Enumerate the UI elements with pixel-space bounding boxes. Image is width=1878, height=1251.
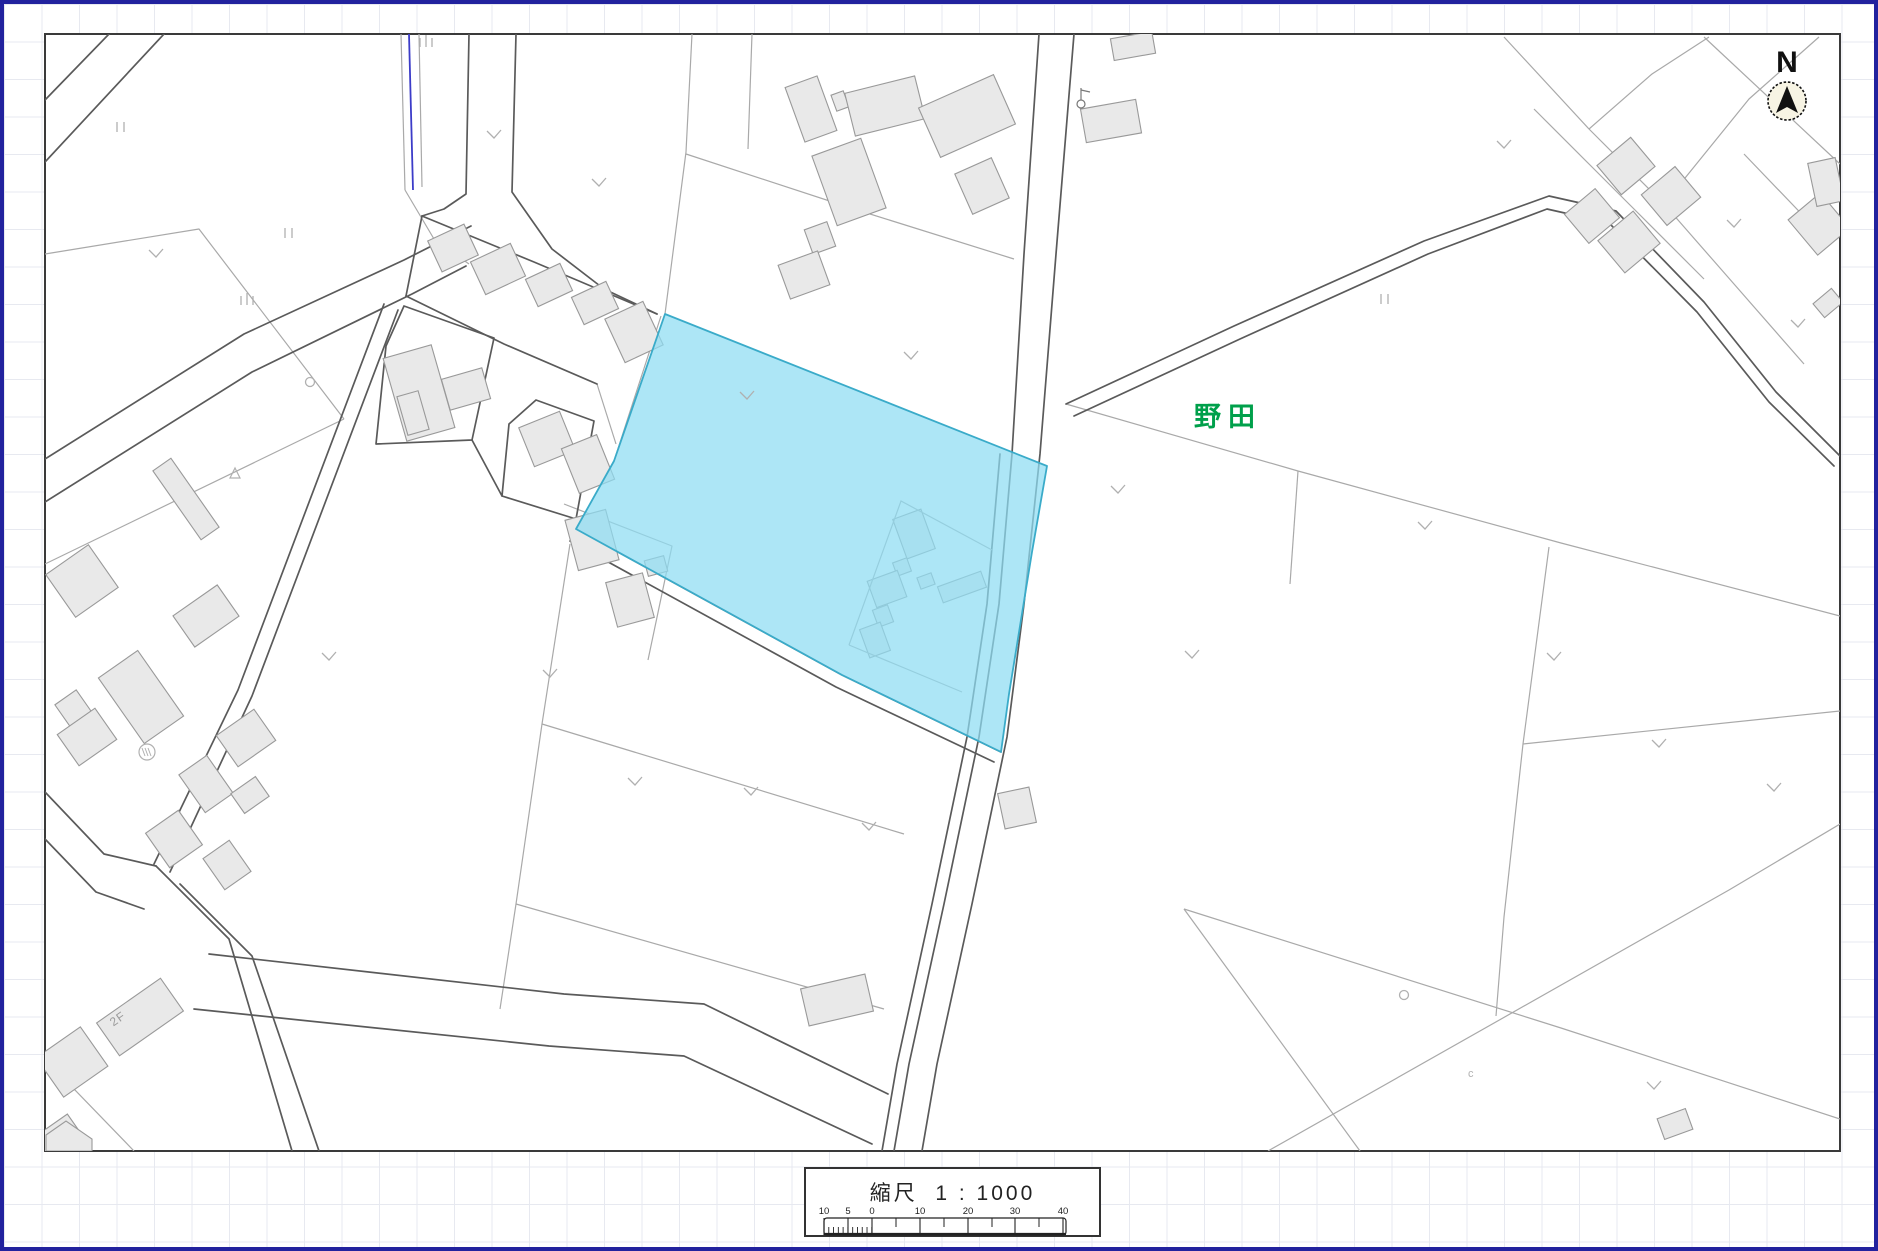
ruler-tick-label: 5 xyxy=(845,1206,850,1217)
ruler-tick-label: 30 xyxy=(1010,1206,1021,1217)
ruler-tick-label: 20 xyxy=(963,1206,974,1217)
map-canvas[interactable]: c 野田2F N xyxy=(4,4,1878,1251)
area-name-label: 野田 xyxy=(1194,402,1262,432)
ruler-tick-label: 40 xyxy=(1058,1206,1069,1217)
ruler-tick-label: 0 xyxy=(869,1206,874,1217)
building-footprint xyxy=(998,787,1037,829)
ruler-tick-label: 10 xyxy=(819,1206,830,1217)
north-label: N xyxy=(1776,46,1798,79)
scale-ruler: 105010203040 xyxy=(806,1169,1103,1239)
ruler-frame xyxy=(824,1218,1066,1235)
ruler-tick-label: 10 xyxy=(915,1206,926,1217)
map-document-page: c 野田2F N 縮尺 1 : 1000 105010203040 xyxy=(0,0,1878,1251)
scale-bar-box: 縮尺 1 : 1000 105010203040 xyxy=(804,1167,1101,1237)
annotation-symbol: c xyxy=(1468,1068,1474,1080)
